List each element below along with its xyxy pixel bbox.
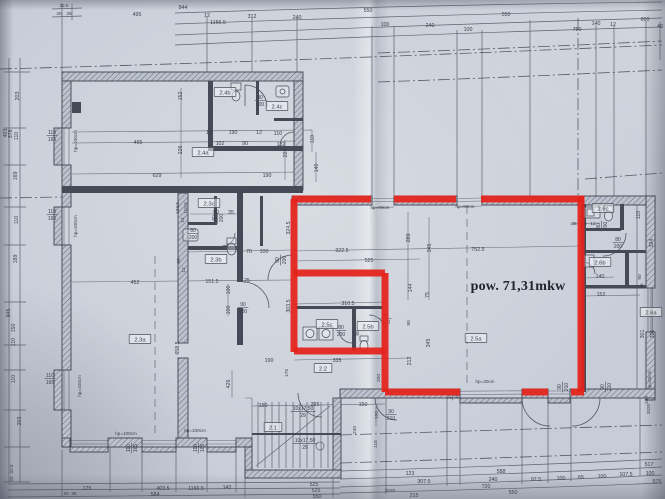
dimension-label: 2020 bbox=[385, 488, 396, 493]
svg-text:210: 210 bbox=[387, 416, 396, 422]
svg-text:200: 200 bbox=[219, 214, 225, 223]
dimension-label: 169 bbox=[13, 172, 19, 181]
size-fraction-label: 110165 bbox=[126, 443, 139, 454]
dimension-label: 35 bbox=[228, 210, 234, 216]
dimension-label: 307.5 bbox=[417, 479, 430, 485]
svg-text:200: 200 bbox=[256, 102, 265, 108]
dimension-label: 100 bbox=[260, 249, 269, 255]
svg-text:29: 29 bbox=[302, 445, 308, 451]
size-fraction-label: 10x17,5029 bbox=[290, 406, 315, 419]
dimension-label: 240 bbox=[426, 23, 435, 29]
dimension-label: 140 bbox=[596, 274, 605, 280]
room-label-2.1: 2.1 bbox=[264, 423, 282, 432]
size-fraction-label: 110165 bbox=[47, 130, 58, 143]
dimension-label: 107.5 bbox=[619, 472, 632, 478]
dimension-label: 301 bbox=[640, 330, 646, 339]
dimension-label: 142 bbox=[223, 485, 232, 491]
size-fraction-label: 90200 bbox=[238, 302, 249, 315]
dimension-label: 345 bbox=[426, 339, 432, 348]
room-label-2.3a: 2.3a bbox=[129, 335, 151, 344]
dimension-label: 240 bbox=[293, 15, 302, 21]
dimension-label: 629 bbox=[153, 173, 162, 179]
svg-text:200: 200 bbox=[337, 332, 346, 338]
svg-text:2.4c: 2.4c bbox=[272, 105, 283, 111]
svg-text:210: 210 bbox=[607, 383, 613, 392]
svg-text:2.1: 2.1 bbox=[269, 426, 277, 432]
dimension-label: 133.5 bbox=[175, 202, 181, 214]
dimension-label: 175 bbox=[284, 369, 290, 377]
dimension-label: 550 bbox=[313, 494, 322, 499]
dimension-label: 152 bbox=[178, 92, 184, 101]
dimension-label: 750 bbox=[573, 27, 582, 33]
svg-text:2.6a: 2.6a bbox=[645, 311, 657, 317]
dimension-label: 215 bbox=[410, 493, 419, 499]
dimension-label: 658.5 bbox=[175, 341, 181, 354]
svg-text:200: 200 bbox=[189, 235, 198, 241]
interior-walls-layer bbox=[62, 81, 646, 435]
dimension-label: 150 bbox=[11, 324, 17, 333]
dimension-label: 525 bbox=[365, 258, 374, 264]
room-label-2.4b: 2.4b bbox=[214, 88, 236, 97]
dimension-label: 517 bbox=[645, 462, 654, 468]
svg-text:2.4a: 2.4a bbox=[197, 151, 209, 157]
dimension-label: 115 bbox=[373, 440, 379, 448]
svg-text:200: 200 bbox=[614, 244, 623, 250]
dimension-label: 575 bbox=[653, 479, 662, 485]
dimension-label: 25 bbox=[71, 491, 77, 496]
dimension-label: 40 bbox=[657, 24, 663, 30]
dimension-label: 20 bbox=[63, 491, 69, 496]
svg-text:165: 165 bbox=[48, 216, 57, 222]
dimension-label: 1166.5 bbox=[210, 20, 226, 26]
dimension-label: 100 bbox=[374, 411, 380, 419]
dimension-label: hp=30cm bbox=[475, 379, 494, 384]
dimension-label: 190 bbox=[229, 130, 238, 136]
dimension-label: 12 bbox=[256, 130, 262, 136]
svg-text:2.3a: 2.3a bbox=[134, 338, 146, 344]
dimension-label: 322.5 bbox=[335, 248, 348, 254]
dimension-label: 75 bbox=[425, 292, 431, 298]
room-label-2.3b: 2.3b bbox=[205, 255, 227, 264]
dimension-label: 752.5 bbox=[471, 247, 484, 253]
room-label-2.4c: 2.4c bbox=[266, 102, 288, 111]
size-fraction-label: 80200 bbox=[255, 95, 266, 108]
room-label-2.6a: 2.6a bbox=[640, 308, 662, 317]
dimension-label: 203 bbox=[17, 417, 23, 426]
dimension-label: 123 bbox=[406, 471, 415, 477]
size-fraction-label: 80200 bbox=[596, 221, 609, 232]
dimension-label: 12 bbox=[204, 13, 210, 19]
dimension-label: 426 bbox=[226, 380, 232, 389]
dimension-label: 100 bbox=[381, 22, 390, 28]
dimension-label: 391 bbox=[650, 330, 656, 339]
dimension-label: 20 bbox=[9, 476, 14, 482]
dimension-label: 945 bbox=[6, 309, 12, 318]
size-fraction-label: 110165 bbox=[45, 373, 56, 386]
dimension-label: hp=90cm bbox=[455, 204, 474, 209]
dimension-label: 110 bbox=[636, 211, 642, 219]
size-fraction-label: 90210 bbox=[557, 382, 570, 393]
svg-text:200: 200 bbox=[282, 256, 288, 265]
blueprint-photo: 844495123122401166.555010024055010014012… bbox=[0, 0, 665, 499]
dimension-label: 324 bbox=[649, 239, 655, 248]
dimension-label: 25 bbox=[244, 278, 250, 284]
room-label-2.2: 2.2 bbox=[314, 364, 332, 373]
svg-text:2.3c: 2.3c bbox=[204, 202, 215, 208]
floorplan-svg: 844495123122401166.555010024055010014012… bbox=[0, 0, 665, 499]
dimension-label: hp=100cm bbox=[73, 130, 78, 152]
dimension-label: 100 bbox=[644, 396, 650, 404]
dimension-label: 110.5 bbox=[183, 202, 189, 214]
dimension-label: hp=90cm bbox=[370, 205, 389, 210]
dimension-label: 100 bbox=[646, 471, 655, 477]
dimension-label: 25 bbox=[66, 11, 72, 16]
dimension-label: 110 bbox=[310, 135, 316, 143]
dimension-label: 100 bbox=[226, 306, 232, 315]
bathroom-fixtures bbox=[183, 83, 613, 352]
room-label-2.4a: 2.4a bbox=[192, 148, 214, 157]
dimension-label: 65 bbox=[578, 475, 584, 481]
svg-text:200: 200 bbox=[239, 309, 248, 315]
dimension-label: 102 bbox=[216, 141, 225, 147]
dimension-label: 25 bbox=[639, 283, 645, 289]
dimension-label: 495 bbox=[133, 12, 142, 18]
dimension-label: 151.5 bbox=[205, 279, 218, 285]
dimension-label: 110 bbox=[11, 338, 17, 346]
dimension-label: 310.5 bbox=[341, 301, 354, 307]
dimension-label: 90 bbox=[637, 274, 643, 280]
dimension-label: hp=100cm bbox=[77, 375, 82, 397]
dimension-label: 90 bbox=[242, 141, 248, 147]
dimension-label: 312 bbox=[248, 14, 257, 20]
room-label-2.6b: 2.6b bbox=[589, 258, 611, 267]
svg-text:2.5b: 2.5b bbox=[362, 325, 373, 331]
dimension-label: 32.5 bbox=[9, 464, 14, 473]
dimension-label: 600 bbox=[641, 17, 650, 23]
dimension-label: 452 bbox=[131, 280, 140, 286]
dimension-label: hp=30cm bbox=[647, 370, 652, 389]
dimension-label: 190 bbox=[263, 173, 272, 179]
dimension-label: 550 bbox=[364, 8, 373, 14]
dimension-label: 200 bbox=[376, 374, 382, 382]
dimension-label: 289 bbox=[406, 234, 412, 243]
dimension-label: 132 bbox=[277, 142, 286, 148]
dimension-label: 240 bbox=[352, 426, 358, 434]
dimension-label: hp=100cm bbox=[115, 431, 137, 436]
dimension-label: 12 bbox=[610, 22, 616, 28]
dimension-label: 89 bbox=[176, 258, 182, 264]
size-fraction-label: 90210 bbox=[386, 409, 397, 422]
dimension-label: 12 bbox=[180, 217, 186, 223]
dimension-label: 32.5 bbox=[60, 3, 69, 8]
dimension-label: 2020 bbox=[646, 403, 651, 414]
size-fraction-label: 110165 bbox=[47, 209, 58, 222]
dimension-label: 70 bbox=[246, 249, 252, 255]
dimension-label: 100 bbox=[598, 474, 607, 480]
size-fraction-label: 110165 bbox=[193, 443, 206, 454]
svg-text:2.4b: 2.4b bbox=[219, 91, 230, 97]
svg-text:2.3b: 2.3b bbox=[210, 258, 221, 264]
dimension-label: 335 bbox=[333, 358, 342, 364]
dimension-label: 90 bbox=[406, 320, 412, 326]
svg-text:2.5c: 2.5c bbox=[322, 323, 333, 329]
dimension-label: 1166.5 bbox=[188, 486, 204, 492]
svg-text:165: 165 bbox=[46, 380, 55, 386]
dimension-label: 189 bbox=[13, 255, 19, 264]
dimension-label: 345 bbox=[427, 244, 433, 253]
dimension-label: 140 bbox=[592, 21, 601, 27]
svg-text:2.6c: 2.6c bbox=[598, 207, 609, 213]
dimension-label: 190 bbox=[265, 358, 274, 364]
dimension-label: 175 bbox=[83, 486, 92, 492]
dimension-label: 144 bbox=[408, 284, 414, 293]
size-fraction-label: 80200 bbox=[613, 237, 624, 250]
dimension-label: 584 bbox=[151, 492, 160, 498]
dimension-label: 226 bbox=[178, 146, 184, 155]
dimension-label: hp=100cm bbox=[184, 428, 206, 433]
size-fraction-label: 90200 bbox=[275, 255, 288, 266]
dimension-label: 588 bbox=[497, 469, 506, 475]
svg-text:2.5a: 2.5a bbox=[470, 337, 482, 343]
dimension-label: 35 bbox=[571, 221, 577, 227]
dimension-label: 844 bbox=[179, 5, 188, 11]
room-label-2.5b: 2.5b bbox=[357, 322, 379, 331]
room-label-2.5a: 2.5a bbox=[465, 334, 487, 343]
area-annotation: pow. 71,31mkw bbox=[462, 279, 574, 295]
dimension-label: 203 bbox=[15, 92, 21, 101]
room-label-2.6c: 2.6c bbox=[592, 204, 614, 213]
dimension-label: 720 bbox=[482, 484, 491, 490]
dimension-label: 90 bbox=[355, 330, 361, 336]
dimension-label: 100 bbox=[464, 27, 473, 33]
svg-text:29: 29 bbox=[300, 413, 306, 419]
dimension-label: 226 bbox=[283, 149, 289, 158]
dimension-label: 12 bbox=[181, 267, 187, 273]
dimension-label: 97.5 bbox=[531, 477, 541, 483]
dimension-label: 110 bbox=[274, 131, 282, 137]
dimension-label: 12 bbox=[206, 130, 212, 136]
size-fraction-label: 90210 bbox=[600, 382, 613, 393]
dimension-label: 212 bbox=[407, 357, 413, 366]
dimension-label: 150 bbox=[359, 402, 368, 408]
svg-text:200: 200 bbox=[603, 222, 609, 231]
dimension-label: 110 bbox=[11, 375, 17, 383]
dimension-label: 550 bbox=[502, 12, 511, 18]
dimension-label: 100 bbox=[226, 286, 232, 295]
dimension-label: 550 bbox=[509, 490, 518, 496]
svg-text:165: 165 bbox=[133, 444, 139, 453]
dimension-label: 110 bbox=[14, 216, 20, 224]
dimension-label: 150 bbox=[259, 403, 268, 409]
dimension-label: 110 bbox=[14, 132, 20, 140]
dimension-label: 140 bbox=[314, 164, 320, 173]
room-label-2.3c: 2.3c bbox=[198, 199, 220, 208]
svg-text:2.6b: 2.6b bbox=[594, 261, 605, 267]
dimension-label: 152 bbox=[597, 292, 606, 298]
dimension-label: 20 bbox=[56, 11, 62, 16]
dimension-label: 240 bbox=[489, 477, 498, 483]
svg-text:210: 210 bbox=[564, 383, 570, 392]
svg-text:165: 165 bbox=[200, 444, 206, 453]
dimension-label: 100 bbox=[557, 476, 566, 482]
svg-text:165: 165 bbox=[48, 137, 57, 143]
dimension-label: hp=100cm bbox=[73, 215, 78, 237]
room-label-2.5c: 2.5c bbox=[316, 320, 338, 329]
dimension-label: 495 bbox=[134, 140, 143, 146]
svg-text:2.2: 2.2 bbox=[319, 367, 327, 373]
dimension-label: 22 bbox=[351, 314, 357, 320]
